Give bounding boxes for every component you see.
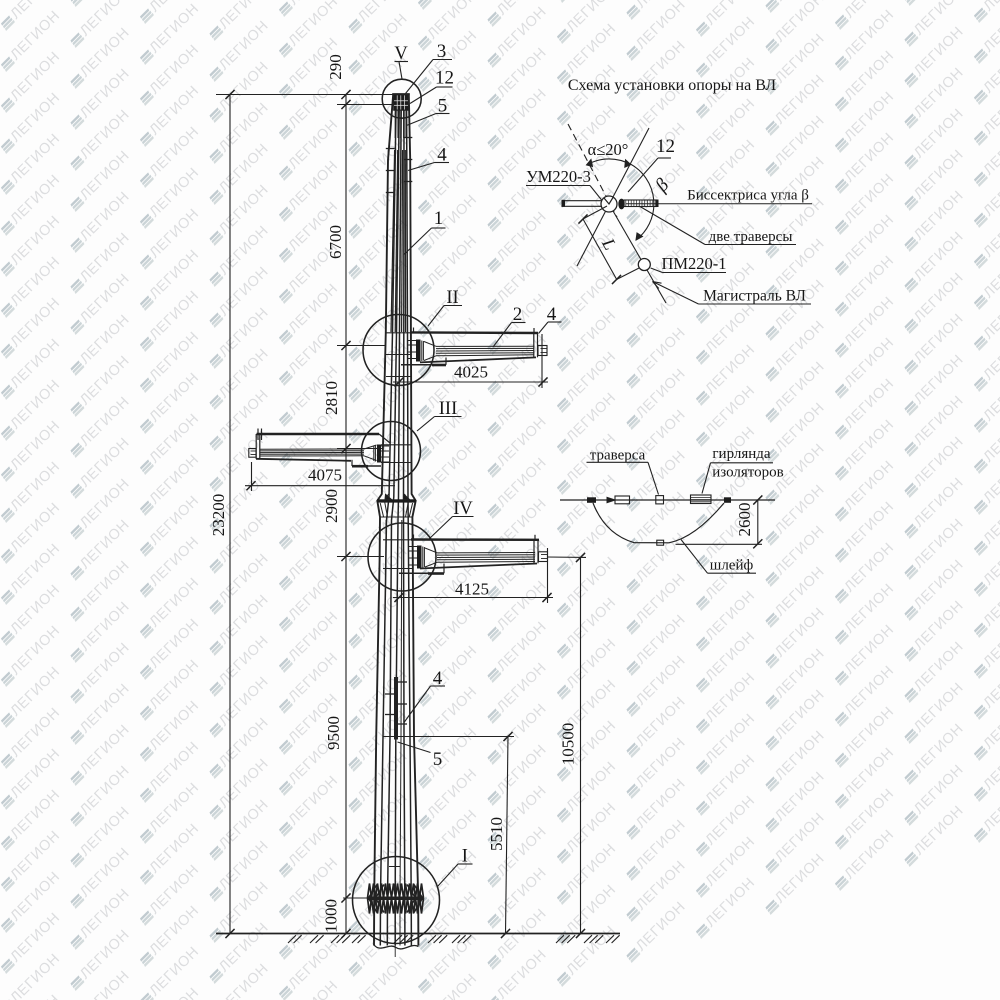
svg-text:Биссектриса угла β: Биссектриса угла β [687, 188, 809, 204]
svg-text:ПМ220-1: ПМ220-1 [661, 254, 726, 273]
svg-text:12: 12 [656, 136, 675, 157]
svg-text:две траверсы: две траверсы [709, 229, 793, 245]
svg-text:1000: 1000 [322, 899, 341, 933]
svg-text:α≤20°: α≤20° [588, 140, 629, 159]
svg-text:4075: 4075 [308, 466, 342, 485]
svg-text:гирлянда: гирлянда [712, 446, 771, 462]
svg-text:9500: 9500 [324, 716, 343, 750]
svg-text:23200: 23200 [209, 494, 228, 537]
svg-text:290: 290 [326, 54, 345, 80]
svg-text:12: 12 [435, 68, 454, 89]
svg-text:4125: 4125 [455, 580, 489, 599]
svg-text:10500: 10500 [559, 723, 578, 766]
svg-text:5510: 5510 [487, 817, 506, 851]
svg-text:5: 5 [433, 749, 443, 770]
svg-text:Схема установки опоры на ВЛ: Схема установки опоры на ВЛ [568, 77, 776, 94]
svg-text:траверса: траверса [590, 448, 646, 464]
svg-text:изоляторов: изоляторов [712, 465, 784, 481]
svg-text:6700: 6700 [326, 225, 345, 259]
svg-text:2600: 2600 [735, 503, 754, 537]
svg-text:4025: 4025 [454, 363, 488, 382]
svg-text:2900: 2900 [322, 489, 341, 523]
svg-text:3: 3 [437, 41, 447, 62]
svg-text:шлейф: шлейф [710, 558, 754, 574]
svg-text:2810: 2810 [322, 381, 341, 415]
svg-text:УМ220-3: УМ220-3 [526, 167, 591, 186]
svg-text:Магистраль ВЛ: Магистраль ВЛ [703, 288, 806, 305]
svg-text:1: 1 [434, 208, 444, 229]
svg-text:2: 2 [513, 304, 523, 325]
